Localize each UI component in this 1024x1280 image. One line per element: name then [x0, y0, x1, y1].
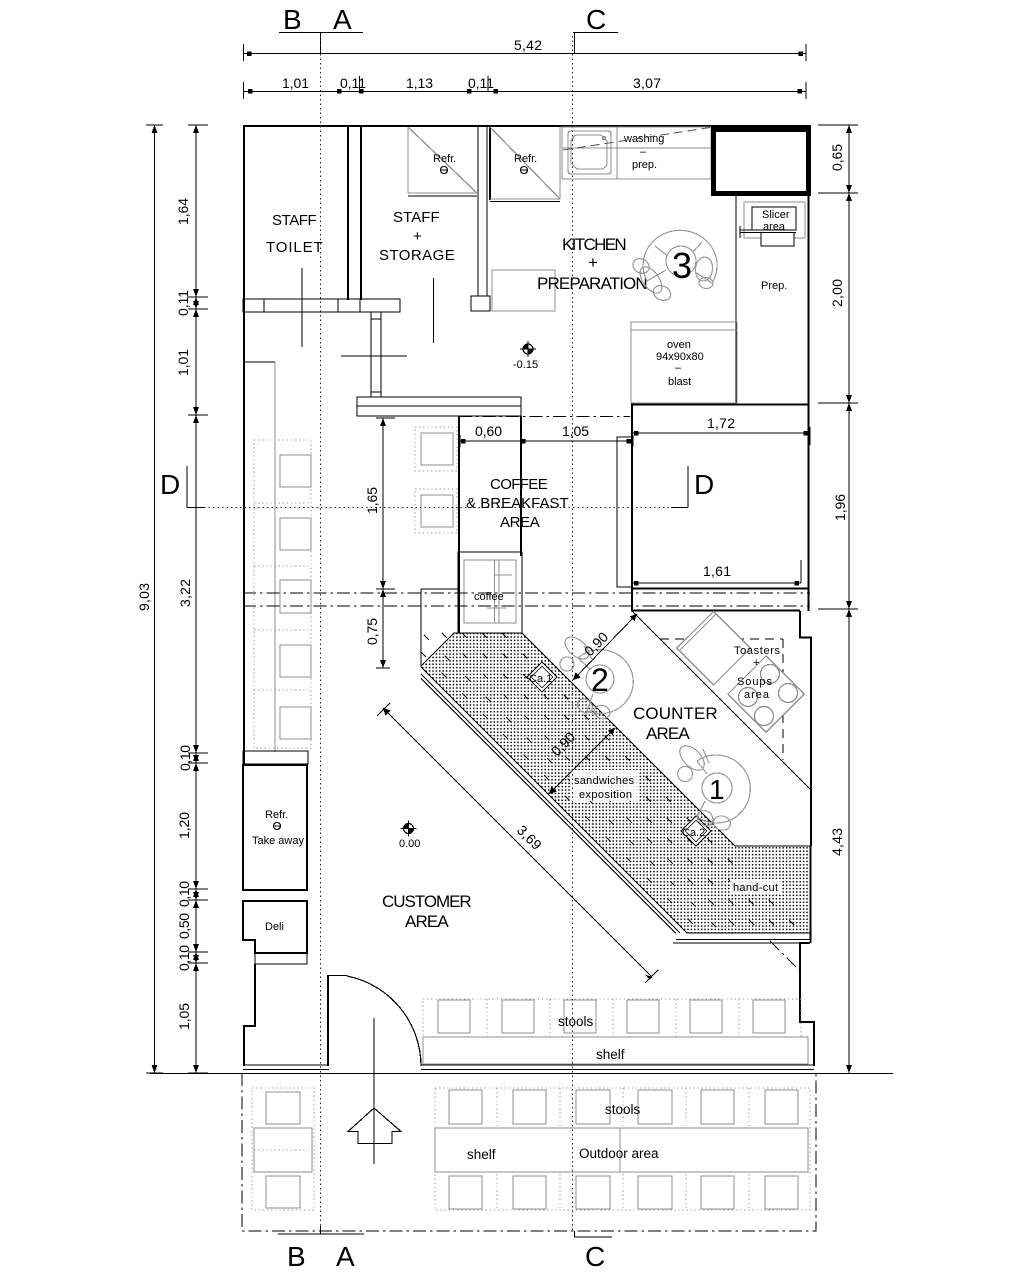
svg-text:B: B [287, 1241, 306, 1272]
svg-text:hand-cut: hand-cut [733, 882, 778, 894]
svg-text:–: – [675, 362, 682, 374]
svg-text:Refr.: Refr. [514, 153, 537, 165]
svg-text:4,43: 4,43 [829, 828, 845, 856]
svg-text:Slicer: Slicer [762, 209, 790, 221]
svg-text:PREPARATION: PREPARATION [537, 274, 648, 293]
svg-text:0,11: 0,11 [468, 75, 494, 91]
svg-text:shelf: shelf [596, 1047, 625, 1062]
svg-text:0,11: 0,11 [175, 290, 191, 316]
svg-text:+: + [588, 253, 598, 272]
svg-text:5,42: 5,42 [514, 37, 542, 53]
svg-text:STAFF: STAFF [393, 209, 440, 226]
svg-text:D: D [694, 469, 714, 500]
svg-text:sandwiches: sandwiches [574, 775, 635, 787]
svg-text:C: C [585, 1241, 605, 1272]
svg-text:blast: blast [668, 376, 691, 388]
svg-text:COFFEE: COFFEE [490, 476, 548, 493]
svg-text:1,64: 1,64 [175, 198, 191, 225]
svg-text:2: 2 [591, 662, 609, 698]
svg-text:& BREAKFAST: & BREAKFAST [466, 495, 569, 512]
svg-text:B: B [283, 4, 302, 35]
svg-text:Refr.: Refr. [265, 809, 288, 821]
svg-text:1,72: 1,72 [707, 415, 735, 431]
svg-text:2,00: 2,00 [829, 279, 845, 307]
svg-text:AREA: AREA [500, 514, 540, 531]
svg-text:A: A [336, 1241, 355, 1272]
svg-text:3: 3 [672, 245, 692, 286]
svg-text:stools: stools [605, 1102, 641, 1117]
svg-text:Soups: Soups [737, 676, 773, 688]
svg-text:stools: stools [558, 1014, 594, 1029]
svg-text:1,20: 1,20 [176, 812, 192, 839]
svg-text:Toasters: Toasters [734, 645, 781, 657]
svg-text:0,60: 0,60 [475, 423, 502, 439]
svg-text:1,96: 1,96 [832, 494, 848, 521]
svg-text:0.00: 0.00 [399, 838, 420, 850]
svg-text:0,65: 0,65 [829, 144, 845, 171]
svg-text:area: area [763, 221, 786, 233]
svg-text:0,10: 0,10 [177, 745, 193, 771]
svg-text:KITCHEN: KITCHEN [562, 235, 627, 254]
svg-text:0,11: 0,11 [340, 75, 366, 91]
svg-text:9,03: 9,03 [136, 583, 152, 611]
svg-text:0,75: 0,75 [364, 618, 380, 645]
svg-text:Refr.: Refr. [433, 153, 456, 165]
svg-text:AREA: AREA [646, 724, 690, 743]
svg-text:STAFF: STAFF [272, 212, 317, 229]
svg-text:-0.15: -0.15 [513, 359, 538, 371]
svg-text:A: A [333, 4, 352, 35]
svg-text:Prep.: Prep. [761, 280, 787, 292]
svg-text:Ca.2: Ca.2 [682, 827, 705, 839]
svg-text:+: + [413, 228, 422, 245]
svg-text:1,01: 1,01 [175, 349, 191, 376]
svg-text:1,01: 1,01 [282, 75, 309, 91]
svg-text:D: D [160, 469, 180, 500]
svg-text:Deli: Deli [265, 921, 284, 933]
svg-text:3,22: 3,22 [177, 579, 193, 607]
svg-text:Ca.1: Ca.1 [529, 673, 552, 685]
svg-text:washing: washing [623, 133, 664, 145]
svg-text:3,07: 3,07 [633, 75, 661, 91]
svg-text:CUSTOMER: CUSTOMER [382, 892, 472, 911]
svg-text:shelf: shelf [467, 1147, 496, 1162]
svg-text:1,05: 1,05 [176, 1003, 192, 1030]
svg-text:1,61: 1,61 [703, 563, 731, 579]
svg-text:Take away: Take away [252, 835, 304, 847]
svg-text:0,10: 0,10 [176, 945, 192, 971]
svg-text:AREA: AREA [405, 912, 449, 931]
svg-text:0,10: 0,10 [176, 881, 192, 907]
svg-text:area: area [744, 689, 770, 701]
svg-text:0,50: 0,50 [176, 913, 192, 939]
svg-text:–: – [640, 146, 647, 158]
svg-text:1: 1 [709, 774, 725, 805]
svg-text:Outdoor area: Outdoor area [579, 1146, 659, 1161]
svg-text:COUNTER: COUNTER [633, 704, 718, 723]
svg-text:+: + [753, 657, 759, 669]
svg-text:exposition: exposition [579, 789, 632, 801]
svg-text:C: C [586, 4, 606, 35]
svg-text:prep.: prep. [632, 159, 657, 171]
svg-text:1,05: 1,05 [562, 423, 589, 439]
svg-text:oven: oven [667, 339, 691, 351]
svg-text:1,13: 1,13 [406, 75, 433, 91]
svg-text:TOILET: TOILET [266, 239, 323, 256]
svg-text:STORAGE: STORAGE [379, 247, 455, 264]
svg-text:1,65: 1,65 [364, 487, 380, 514]
